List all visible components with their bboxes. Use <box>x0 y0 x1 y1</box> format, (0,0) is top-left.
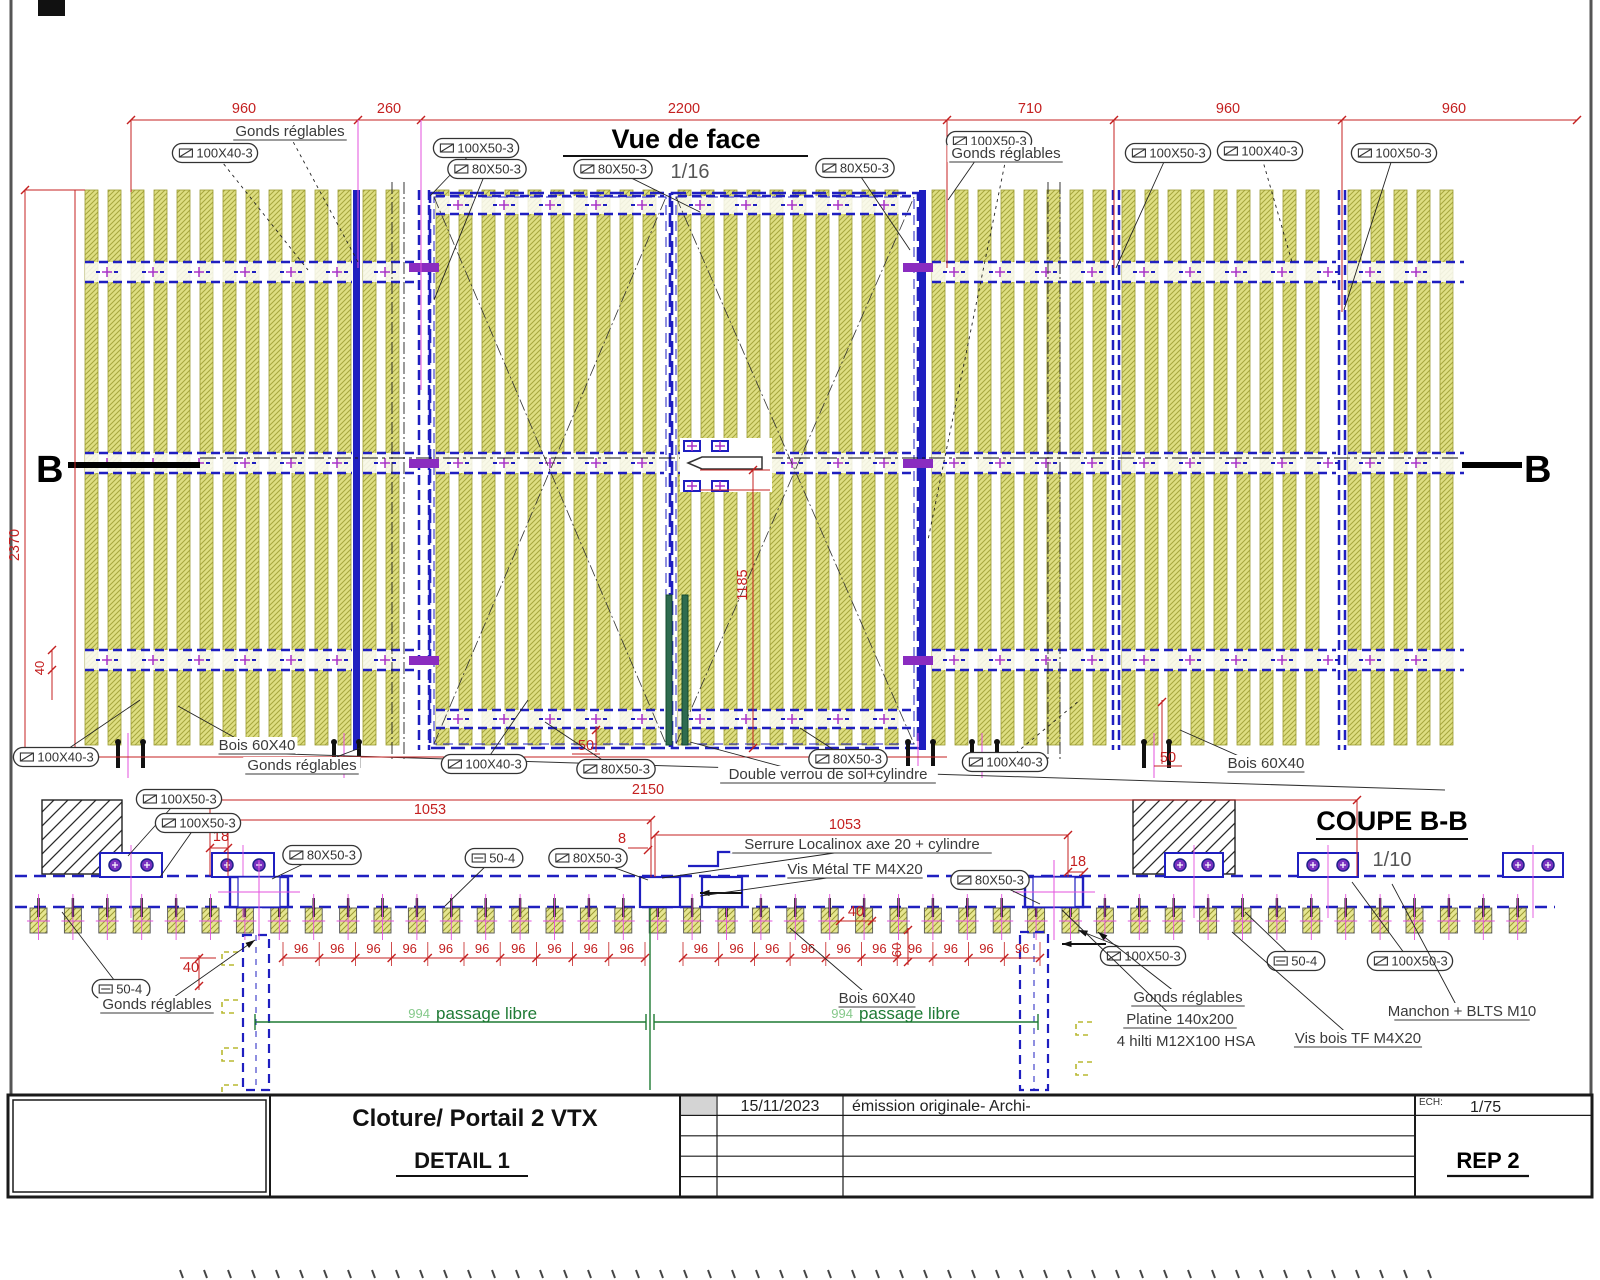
dim-96: 96 <box>944 941 958 956</box>
dim-overall: 2150 <box>632 782 664 798</box>
label-Serrure-Localinox-axe-20-cylindre: Serrure Localinox axe 20 + cylindre <box>744 836 980 853</box>
callout-100X50-3: 100X50-3 <box>1124 949 1180 964</box>
label-Manchon-BLTS-M10: Manchon + BLTS M10 <box>1388 1003 1537 1020</box>
label-Gonds-r-glables: Gonds réglables <box>102 996 211 1013</box>
label-Bois-60X40: Bois 60X40 <box>219 737 296 754</box>
dim-lock-height: 1185 <box>735 569 751 600</box>
dim-96: 96 <box>729 941 743 956</box>
dim-top-4: 960 <box>1216 101 1240 117</box>
passage-dim-right: 994 <box>831 1006 853 1021</box>
detail-title: DETAIL 1 <box>414 1148 510 1173</box>
passage-dim-left: 994 <box>408 1006 430 1021</box>
dim-top-3: 710 <box>1018 101 1042 117</box>
dim-top-5: 960 <box>1442 101 1466 117</box>
label-Gonds-r-glables: Gonds réglables <box>951 145 1060 162</box>
dim-top-1: 260 <box>377 101 401 117</box>
dim-top-2: 2200 <box>668 101 700 117</box>
callout-100X40-3: 100X40-3 <box>37 750 93 765</box>
revision-date: 15/11/2023 <box>741 1098 820 1115</box>
dim-offset: 40 <box>32 661 47 675</box>
project-title: Cloture/ Portail 2 VTX <box>352 1105 597 1132</box>
revision-index-cell <box>681 1097 716 1115</box>
label-4-hilti-M12X100-HSA: 4 hilti M12X100 HSA <box>1117 1033 1255 1050</box>
callout-50-4: 50-4 <box>1291 954 1317 969</box>
label-Gonds-r-glables: Gonds réglables <box>1133 989 1242 1006</box>
front-view-title: Vue de face <box>611 124 760 154</box>
bottom-edge-ticks <box>180 1270 1431 1278</box>
engineering-drawing-page: 960260220071096096023704011855050 994pas… <box>0 0 1600 1280</box>
section-marker-left: B <box>36 449 63 491</box>
callout-100X50-3: 100X50-3 <box>179 816 235 831</box>
dim-60: 60 <box>889 943 904 957</box>
label-Bois-60X40: Bois 60X40 <box>1228 755 1305 772</box>
dim-96: 96 <box>1015 941 1029 956</box>
dim-96: 96 <box>583 941 597 956</box>
dim-50-left: 50 <box>578 738 594 754</box>
dim-96: 96 <box>330 941 344 956</box>
dim-96: 96 <box>979 941 993 956</box>
label-Platine-140x200: Platine 140x200 <box>1126 1011 1234 1028</box>
dim-96: 96 <box>294 941 308 956</box>
dim-96: 96 <box>694 941 708 956</box>
dim-40-center: 40 <box>848 904 864 920</box>
callout-100X50-3: 100X50-3 <box>457 141 513 156</box>
callout-80X50-3: 80X50-3 <box>601 762 650 777</box>
callout-100X40-3: 100X40-3 <box>986 755 1042 770</box>
section-marker-right: B <box>1524 449 1551 491</box>
dim-top-0: 960 <box>232 101 256 117</box>
callout-100X40-3: 100X40-3 <box>1241 144 1297 159</box>
title-block-logo-cell <box>13 1100 266 1192</box>
dim-96: 96 <box>620 941 634 956</box>
dim-edge-right: 18 <box>1070 854 1086 870</box>
callout-50-4: 50-4 <box>116 982 142 997</box>
label-Gonds-r-glables: Gonds réglables <box>235 123 344 140</box>
callout-100X50-3: 100X50-3 <box>1375 146 1431 161</box>
callout-50-4: 50-4 <box>489 851 515 866</box>
callout-80X50-3: 80X50-3 <box>840 161 889 176</box>
section-view-scale: 1/10 <box>1373 849 1412 871</box>
label-Gonds-r-glables: Gonds réglables <box>247 757 356 774</box>
callout-100X40-3: 100X40-3 <box>465 757 521 772</box>
callout-80X50-3: 80X50-3 <box>975 873 1024 888</box>
dim-96: 96 <box>765 941 779 956</box>
callout-80X50-3: 80X50-3 <box>573 851 622 866</box>
dim-96: 96 <box>511 941 525 956</box>
dim-96: 96 <box>836 941 850 956</box>
dim-96: 96 <box>439 941 453 956</box>
callout-100X50-3: 100X50-3 <box>160 792 216 807</box>
dim-gap: 8 <box>618 831 626 847</box>
dim-leaf-right: 1053 <box>829 817 861 833</box>
callout-100X40-3: 100X40-3 <box>196 146 252 161</box>
callout-80X50-3: 80X50-3 <box>307 848 356 863</box>
callout-80X50-3: 80X50-3 <box>833 752 882 767</box>
passage-label-left: passage libre <box>436 1004 537 1023</box>
dim-96: 96 <box>475 941 489 956</box>
title-block: Cloture/ Portail 2 VTX DETAIL 1 15/11/20… <box>8 1095 1592 1197</box>
dim-leaf-left: 1053 <box>414 802 446 818</box>
dim-height: 2370 <box>7 529 23 561</box>
dim-96: 96 <box>402 941 416 956</box>
label-Bois-60X40: Bois 60X40 <box>839 990 916 1007</box>
front-view <box>68 182 1522 790</box>
label-Vis-bois-TF-M4X20: Vis bois TF M4X20 <box>1295 1030 1421 1047</box>
scale-cell-label: ECH: <box>1419 1097 1443 1108</box>
dim-96: 96 <box>908 941 922 956</box>
dim-40-left: 40 <box>183 960 199 976</box>
cad-drawing-canvas: 960260220071096096023704011855050 994pas… <box>0 0 1600 1280</box>
callout-80X50-3: 80X50-3 <box>598 162 647 177</box>
dim-96: 96 <box>547 941 561 956</box>
callout-100X50-3: 100X50-3 <box>1391 954 1447 969</box>
callout-100X50-3: 100X50-3 <box>1149 146 1205 161</box>
dim-96: 96 <box>366 941 380 956</box>
scale-cell-value: 1/75 <box>1470 1099 1501 1116</box>
revision-description: émission originale- Archi- <box>852 1098 1031 1115</box>
rep-number: REP 2 <box>1456 1148 1519 1173</box>
dim-96: 96 <box>872 941 886 956</box>
front-view-scale: 1/16 <box>671 161 710 183</box>
callout-80X50-3: 80X50-3 <box>472 162 521 177</box>
label-Vis-M-tal-TF-M4X20: Vis Métal TF M4X20 <box>787 861 922 878</box>
section-view-title: COUPE B-B <box>1316 806 1468 836</box>
top-edge-mark <box>38 0 65 16</box>
